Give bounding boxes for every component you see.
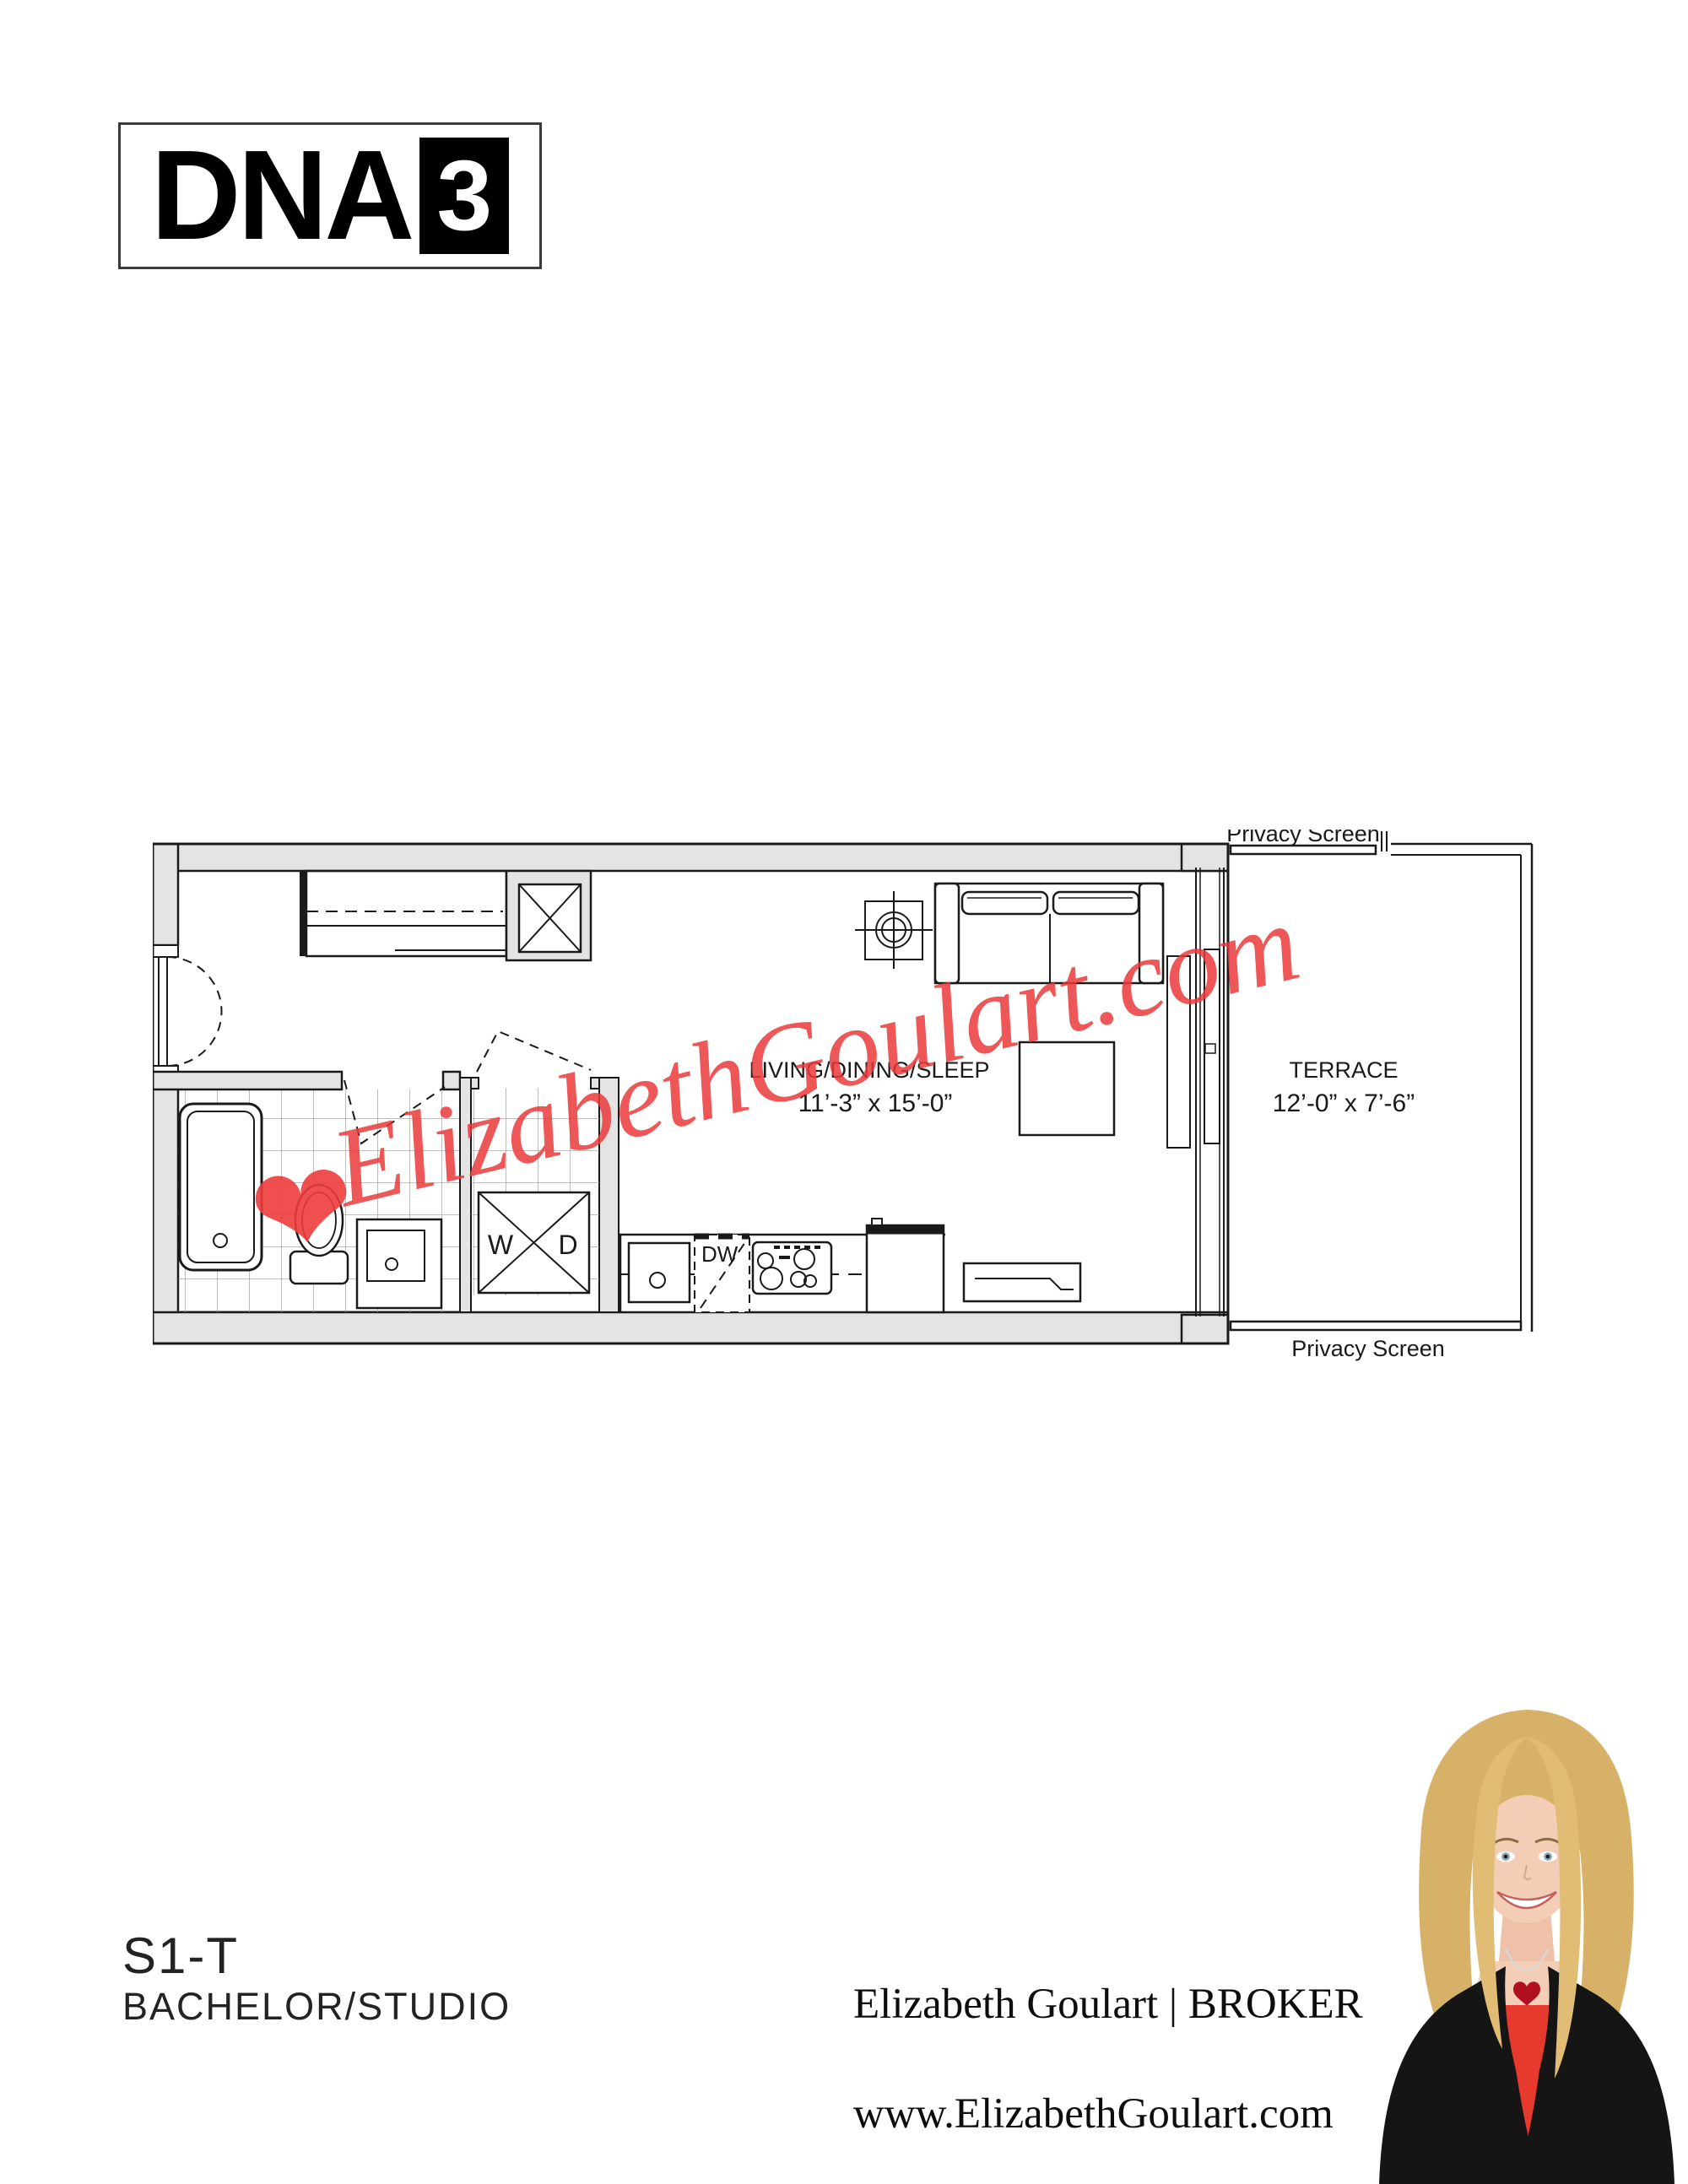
laundry-wall-left [460, 1078, 471, 1312]
terrace: Privacy Screen Privacy Screen TERRACE 12… [1226, 830, 1532, 1361]
entry-door-leaf [159, 957, 167, 1066]
corner-wall-bottom-right [1182, 1315, 1228, 1343]
toilet [290, 1185, 348, 1284]
entry-door [153, 945, 222, 1078]
laundry-wall-right [599, 1078, 619, 1312]
logo-number-box: 3 [419, 138, 509, 254]
media-bench [964, 1263, 1080, 1301]
broker-name-title: Elizabeth Goulart | BROKER [853, 1980, 1363, 2029]
coffee-table [1020, 1042, 1114, 1135]
floor-plan: LIVING/DINING/SLEEP 11’-3” x 15’-0” [153, 830, 1537, 1370]
cooktop [753, 1242, 831, 1294]
living-room-dims: 11’-3” x 15’-0” [798, 1089, 953, 1117]
unit-type: BACHELOR/STUDIO [122, 1985, 511, 2029]
broker-photo [1366, 1695, 1688, 2184]
bathtub [180, 1104, 262, 1270]
bathroom-wall [153, 1072, 342, 1089]
broker-website: www.ElizabethGoulart.com [853, 2089, 1334, 2138]
privacy-screen-top-bar [1231, 846, 1376, 854]
door-handle [1205, 1044, 1215, 1053]
top-wall [153, 844, 1228, 871]
kitchen-sink [629, 1243, 690, 1302]
laundry-closet: W D [460, 1031, 619, 1312]
privacy-screen-bottom-label: Privacy Screen [1291, 1336, 1445, 1361]
left-wall-upper [153, 844, 178, 945]
living-room-label: LIVING/DINING/SLEEP [749, 1057, 989, 1083]
entry-door-swing [167, 957, 222, 1066]
sofa [935, 884, 1163, 983]
dishwasher: DW [695, 1235, 749, 1312]
shaft-column [506, 871, 591, 960]
left-wall-lower [153, 1078, 178, 1343]
terrace-dims: 12’-0” x 7’-6” [1273, 1089, 1415, 1117]
sliding-door-panel [1167, 956, 1190, 1148]
dna3-logo: DNA 3 [118, 122, 542, 269]
page: DNA 3 [0, 0, 1688, 2184]
laundry-door-swing [477, 1031, 591, 1072]
corner-wall-top-right [1182, 844, 1228, 871]
window-wall [1167, 868, 1224, 1316]
unit-code: S1-T [122, 1927, 239, 1985]
vanity-sink [357, 1219, 441, 1308]
entry-closet [300, 871, 506, 956]
bathroom [153, 1072, 460, 1312]
privacy-screen-bottom-bar [1231, 1322, 1521, 1330]
terrace-label: TERRACE [1289, 1057, 1398, 1083]
washer-dryer: W D [479, 1192, 589, 1293]
washer-label: W [488, 1230, 514, 1260]
logo-brand-text: DNA [151, 132, 412, 260]
logo-number-text: 3 [437, 146, 493, 246]
bottom-wall [153, 1312, 1228, 1343]
ceiling-light-icon [855, 891, 933, 969]
dishwasher-label: DW [701, 1241, 738, 1267]
fridge [867, 1219, 944, 1312]
kitchen: DW [620, 1219, 945, 1312]
dryer-label: D [558, 1230, 577, 1260]
privacy-screen-top-label: Privacy Screen [1226, 830, 1380, 846]
